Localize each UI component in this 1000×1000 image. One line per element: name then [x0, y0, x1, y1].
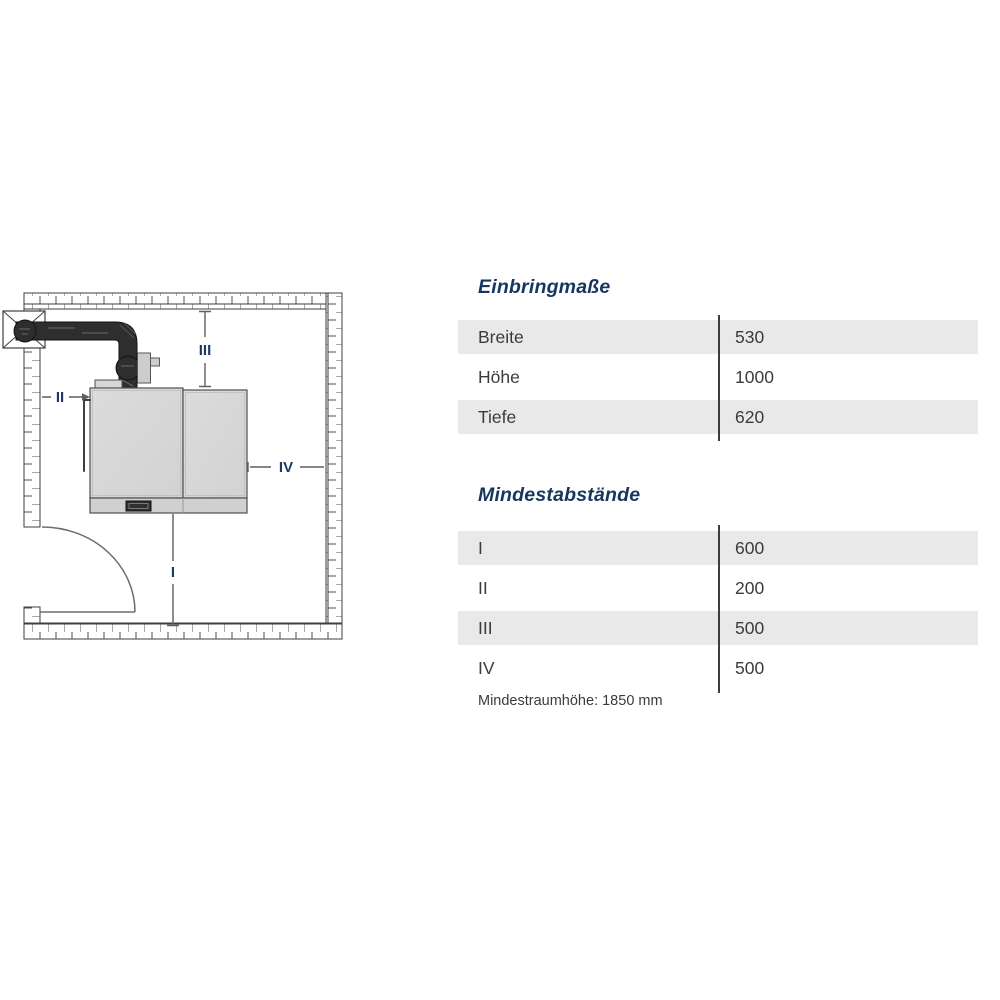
row-label: IV	[458, 658, 719, 679]
row-value: 500	[719, 618, 764, 639]
einbringmasse-table: Breite 530 Höhe 1000 Tiefe 620	[458, 317, 978, 437]
mindestabstaende-table: I 600 II 200 III 500 IV 500	[458, 528, 978, 688]
wall-top	[24, 293, 342, 309]
wall-right	[326, 293, 342, 639]
dimension-line-II	[42, 393, 90, 401]
flue-end-cap	[14, 320, 36, 342]
row-value: 620	[719, 407, 764, 428]
row-label: Breite	[458, 327, 719, 348]
section-title-einbringmasse: Einbringmaße	[478, 276, 610, 299]
row-value: 200	[719, 578, 764, 599]
table-divider-line	[718, 525, 720, 693]
dimension-label-iv: IV	[279, 459, 293, 476]
flue-collar	[116, 356, 140, 380]
row-value: 600	[719, 538, 764, 559]
door-swing	[40, 527, 135, 612]
dimension-label-i: I	[171, 564, 175, 581]
boiler-nameplate	[126, 501, 151, 511]
section-title-mindestabstaende: Mindestabstände	[478, 484, 640, 507]
dimension-label-ii: II	[56, 389, 64, 406]
page: III II IV I Einbringmaße Breite 530 Höhe…	[0, 0, 1000, 1000]
boiler-side-pipe	[84, 400, 90, 471]
flue-bracket	[138, 353, 151, 383]
boiler-unit	[84, 380, 247, 513]
row-label: Höhe	[458, 367, 719, 388]
row-label: Tiefe	[458, 407, 719, 428]
row-label: I	[458, 538, 719, 559]
installation-room-diagram: III II IV I	[0, 280, 460, 720]
boiler-plinth	[90, 498, 247, 513]
row-value: 500	[719, 658, 764, 679]
row-value: 530	[719, 327, 764, 348]
boiler-top-tab	[95, 380, 122, 388]
wall-left-door-stub	[24, 607, 40, 623]
table-divider-line	[718, 315, 720, 441]
boiler-left-section	[90, 388, 183, 498]
wall-bottom	[24, 623, 342, 639]
row-label: II	[458, 578, 719, 599]
min-room-height-note: Mindestraumhöhe: 1850 mm	[478, 693, 663, 709]
row-value: 1000	[719, 367, 774, 388]
boiler-right-section	[183, 390, 247, 498]
dimension-label-iii: III	[199, 342, 212, 359]
row-label: III	[458, 618, 719, 639]
